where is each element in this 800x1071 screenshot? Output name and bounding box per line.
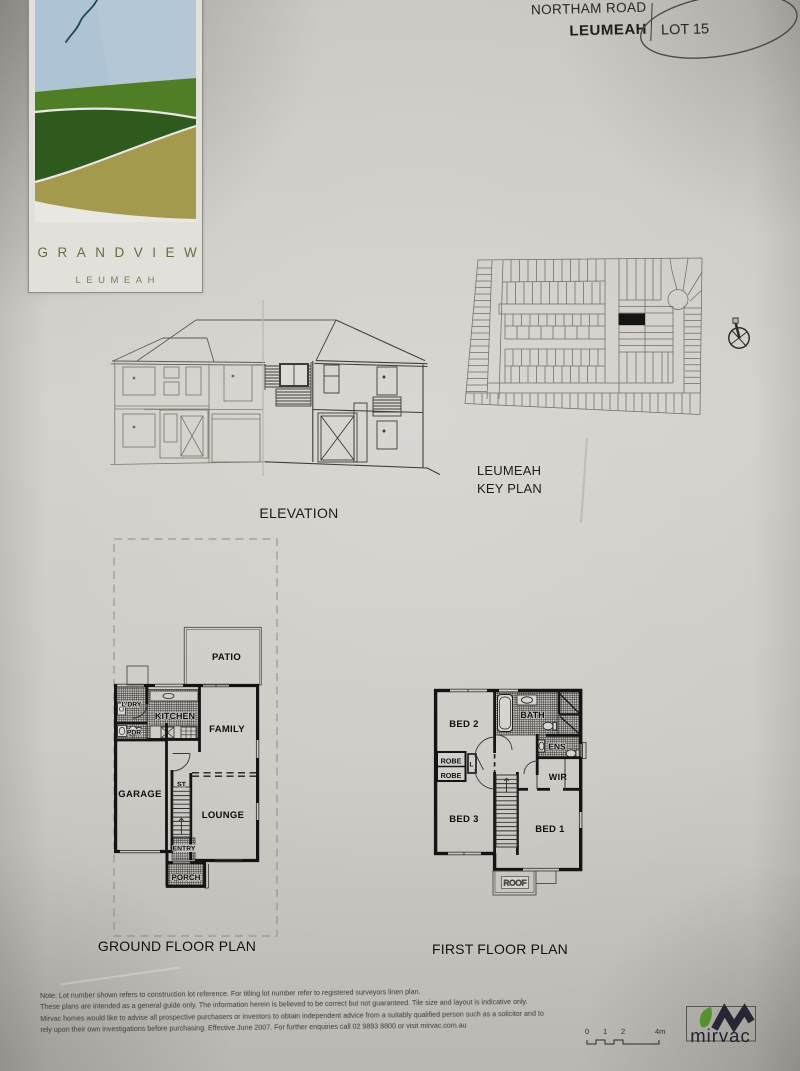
svg-text:ROBE: ROBE xyxy=(441,757,462,766)
svg-text:LOUNGE: LOUNGE xyxy=(202,810,244,821)
svg-text:FAMILY: FAMILY xyxy=(209,724,245,735)
svg-text:0: 0 xyxy=(585,1027,589,1036)
svg-text:L'DRY: L'DRY xyxy=(122,702,142,709)
svg-text:ROOF: ROOF xyxy=(503,879,526,888)
svg-text:L: L xyxy=(470,762,474,769)
svg-text:BED 2: BED 2 xyxy=(449,719,478,730)
svg-text:GARAGE: GARAGE xyxy=(118,789,162,800)
svg-text:ROBE: ROBE xyxy=(441,771,462,780)
svg-text:WIR: WIR xyxy=(549,772,568,782)
svg-text:ST: ST xyxy=(177,782,187,789)
svg-text:ENS: ENS xyxy=(548,742,566,752)
svg-text:KITCHEN: KITCHEN xyxy=(155,711,195,721)
svg-text:PDR: PDR xyxy=(127,730,141,737)
svg-text:mirvac: mirvac xyxy=(690,1025,750,1046)
svg-text:2: 2 xyxy=(621,1027,625,1036)
svg-text:BATH: BATH xyxy=(520,710,544,720)
svg-text:PORCH: PORCH xyxy=(172,873,201,882)
svg-text:BED 1: BED 1 xyxy=(535,824,565,835)
svg-text:4m: 4m xyxy=(655,1027,665,1036)
svg-text:1: 1 xyxy=(603,1027,607,1036)
svg-text:PATIO: PATIO xyxy=(212,652,241,663)
svg-text:ENTRY: ENTRY xyxy=(173,846,196,853)
svg-text:BED 3: BED 3 xyxy=(449,814,478,825)
